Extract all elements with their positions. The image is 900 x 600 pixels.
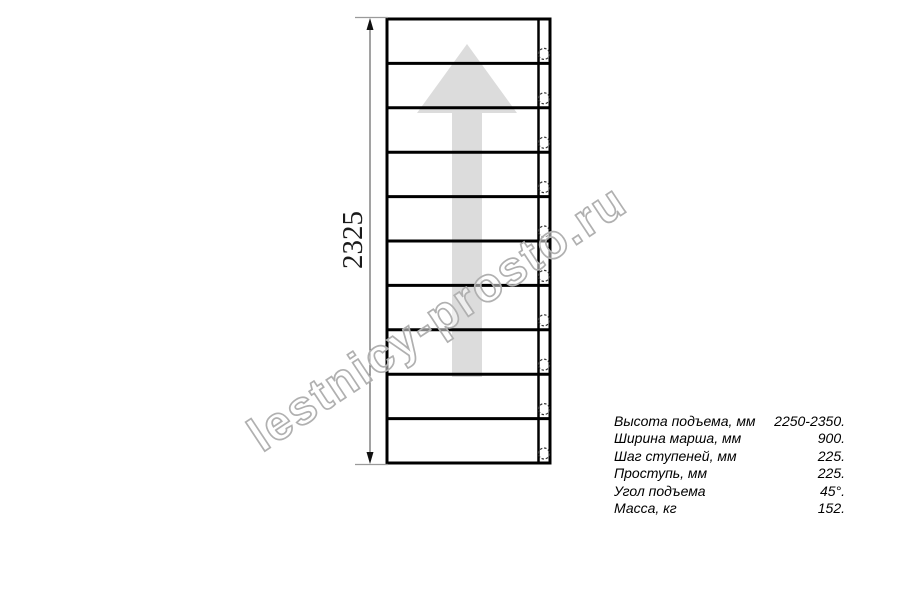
mounting-hole-circle bbox=[539, 359, 550, 370]
spec-label: Высота подъема, мм bbox=[614, 413, 756, 430]
spec-row: Высота подъема, мм 2250-2350. bbox=[614, 413, 845, 430]
spec-label: Ширина марша, мм bbox=[614, 430, 741, 447]
dimension-value-label: 2325 bbox=[337, 211, 369, 269]
mounting-hole-circle bbox=[539, 93, 550, 104]
spec-value: 225. bbox=[818, 465, 845, 482]
mounting-hole-circle bbox=[539, 182, 550, 193]
specs-list: Высота подъема, мм 2250-2350. Ширина мар… bbox=[614, 413, 845, 517]
spec-row: Шаг ступеней, мм 225. bbox=[614, 448, 845, 465]
dimension-arrowhead-top bbox=[367, 18, 374, 30]
mounting-hole-circle bbox=[539, 404, 550, 415]
spec-row: Угол подъема 45°. bbox=[614, 483, 845, 500]
mounting-hole-circle bbox=[539, 315, 550, 326]
drawing-canvas: 2325 lestnicy-prosto.ru Высота подъема, … bbox=[0, 0, 900, 600]
spec-value: 152. bbox=[818, 500, 845, 517]
dimension-arrowhead-bottom bbox=[367, 452, 374, 464]
spec-row: Масса, кг 152. bbox=[614, 500, 845, 517]
spec-value: 225. bbox=[818, 448, 845, 465]
spec-row: Ширина марша, мм 900. bbox=[614, 430, 845, 447]
mounting-hole-circle bbox=[539, 137, 550, 148]
spec-label: Масса, кг bbox=[614, 500, 677, 517]
spec-row: Проступь, мм 225. bbox=[614, 465, 845, 482]
mounting-hole-circle bbox=[539, 48, 550, 59]
spec-value: 45°. bbox=[820, 483, 845, 500]
mounting-hole-circle bbox=[539, 448, 550, 459]
spec-label: Угол подъема bbox=[614, 483, 706, 500]
spec-label: Проступь, мм bbox=[614, 465, 707, 482]
spec-label: Шаг ступеней, мм bbox=[614, 448, 737, 465]
spec-value: 900. bbox=[818, 430, 845, 447]
spec-value: 2250-2350. bbox=[774, 413, 845, 430]
